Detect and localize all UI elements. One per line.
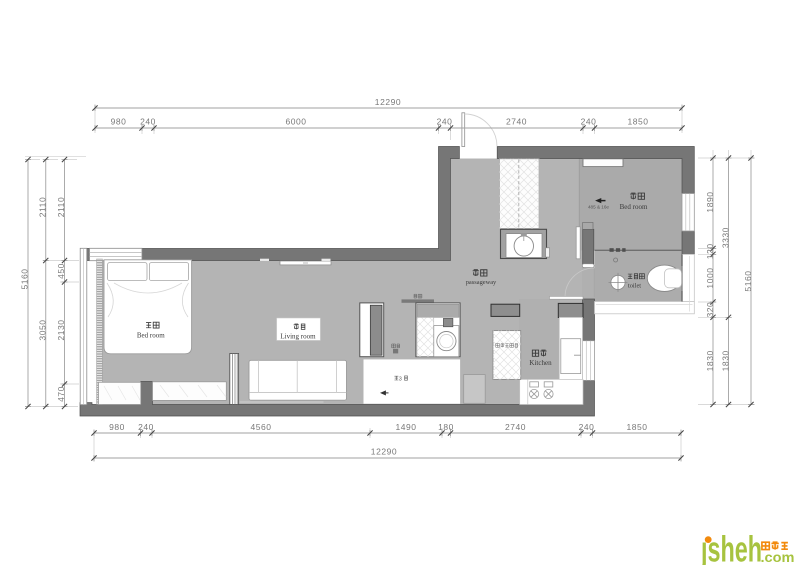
svg-text:toilet: toilet — [628, 283, 641, 290]
svg-text:5160: 5160 — [743, 270, 753, 291]
svg-text:450: 450 — [56, 263, 66, 279]
svg-text:180: 180 — [438, 422, 454, 432]
svg-text:240: 240 — [437, 117, 453, 127]
svg-text:320: 320 — [705, 302, 715, 318]
svg-text:.com: .com — [761, 550, 795, 565]
svg-text:240: 240 — [581, 117, 597, 127]
svg-text:Bed room: Bed room — [137, 332, 165, 340]
svg-text:3050: 3050 — [38, 319, 48, 340]
svg-text:1830: 1830 — [720, 350, 730, 371]
svg-text:2740: 2740 — [506, 117, 527, 127]
svg-text:2110: 2110 — [38, 197, 48, 217]
svg-text:Kitchen: Kitchen — [529, 359, 552, 367]
svg-text:3: 3 — [399, 376, 402, 382]
svg-text:470: 470 — [56, 386, 66, 402]
svg-text:passageway: passageway — [466, 279, 497, 286]
svg-text:120: 120 — [705, 243, 715, 259]
svg-text:240: 240 — [140, 117, 156, 127]
svg-text:485 & 16e: 485 & 16e — [588, 204, 609, 209]
svg-text:1830: 1830 — [705, 350, 715, 371]
svg-text:5160: 5160 — [20, 268, 30, 289]
svg-text:980: 980 — [111, 117, 127, 127]
svg-text:1850: 1850 — [626, 422, 647, 432]
svg-text:Bed room: Bed room — [620, 203, 648, 211]
svg-text:Living room: Living room — [280, 333, 316, 341]
svg-text:12290: 12290 — [371, 447, 397, 457]
svg-text:3330: 3330 — [720, 227, 730, 248]
svg-text:2130: 2130 — [56, 319, 66, 340]
svg-text:2110: 2110 — [56, 197, 66, 217]
svg-text:2740: 2740 — [505, 422, 526, 432]
svg-text:1850: 1850 — [627, 117, 648, 127]
svg-text:240: 240 — [579, 422, 595, 432]
svg-text:1000: 1000 — [705, 267, 715, 288]
svg-text:240: 240 — [138, 422, 154, 432]
svg-text:980: 980 — [109, 422, 125, 432]
svg-text:12290: 12290 — [375, 97, 401, 107]
svg-text:6000: 6000 — [285, 117, 306, 127]
svg-text:4560: 4560 — [250, 422, 271, 432]
svg-text:1490: 1490 — [395, 422, 416, 432]
svg-text:1890: 1890 — [705, 191, 715, 212]
